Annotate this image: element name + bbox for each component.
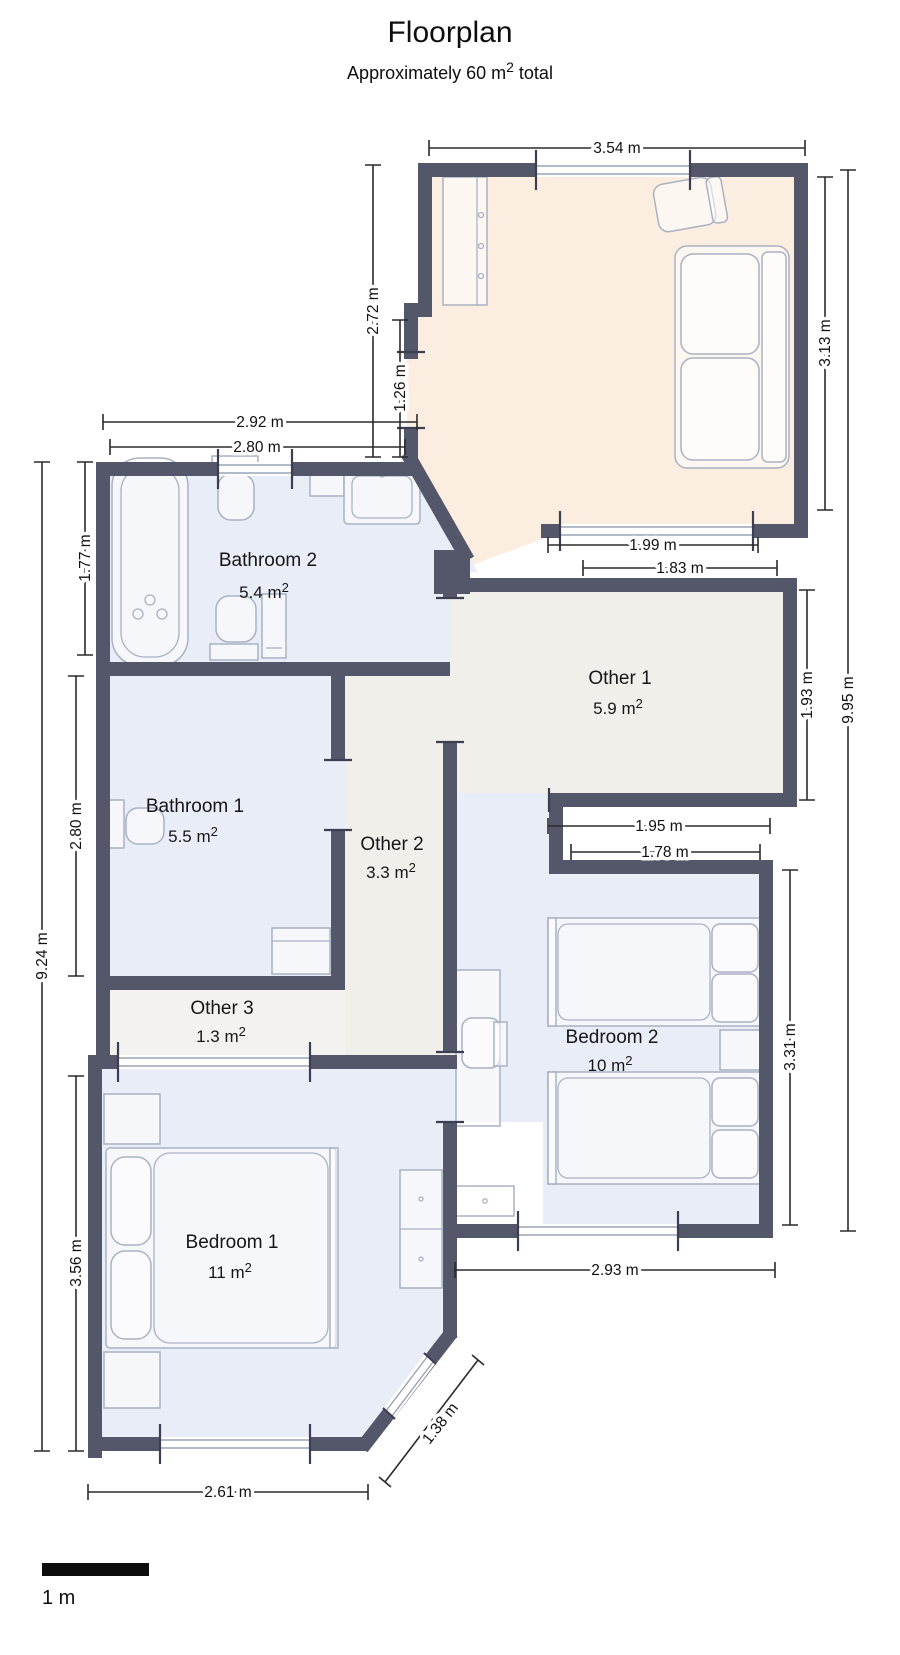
svg-text:2.80 m: 2.80 m: [233, 439, 280, 456]
dim-bedroom1-bottom: 2.61 m: [88, 1484, 368, 1501]
dim-bath2-outer: 2.92 m: [103, 414, 417, 431]
other1-floor: [450, 578, 797, 807]
dresser-icon: [400, 1170, 442, 1288]
svg-text:2.72 m: 2.72 m: [365, 287, 382, 334]
svg-text:3.31 m: 3.31 m: [782, 1023, 799, 1070]
dim-other1-top: 1.83 m: [583, 560, 777, 577]
dim-living-left-upper: 2.72 m: [365, 165, 382, 457]
svg-text:3.13 m: 3.13 m: [817, 319, 834, 366]
nightstand-icon: [720, 1030, 762, 1070]
svg-text:1.99 m: 1.99 m: [629, 537, 676, 554]
svg-text:Bedroom 2: Bedroom 2: [566, 1027, 659, 1048]
svg-text:1.38 m: 1.38 m: [419, 1400, 462, 1448]
single-bed-icon: [548, 918, 760, 1026]
svg-text:Other 2: Other 2: [360, 834, 423, 855]
page-subtitle: Approximately 60 m2 total: [347, 59, 553, 83]
svg-text:3.54 m: 3.54 m: [593, 140, 640, 157]
svg-text:Bathroom 2: Bathroom 2: [219, 550, 317, 571]
dim-bedroom2-top: 1.78 m: [571, 844, 760, 861]
cabinet-icon: [456, 1186, 514, 1216]
dim-bath2-inner: 2.80 m: [110, 439, 405, 456]
svg-text:9.24 m: 9.24 m: [34, 932, 51, 979]
wardrobe-icon: [443, 177, 487, 305]
dim-overall-left: 9.24 m: [34, 462, 51, 1451]
svg-text:2.61 m: 2.61 m: [204, 1484, 251, 1501]
cabinet-icon: [262, 594, 286, 658]
sofa-icon: [675, 246, 789, 468]
svg-text:1.78 m: 1.78 m: [641, 844, 688, 861]
svg-text:5.5 m2: 5.5 m2: [168, 824, 218, 846]
dim-bedroom2-bottom: 2.93 m: [455, 1262, 775, 1279]
svg-text:5.4 m2: 5.4 m2: [239, 580, 289, 602]
cabinet-icon: [272, 928, 330, 974]
dim-bedroom1-left: 3.56 m: [68, 1076, 85, 1451]
dim-other1-bottom: 1.95 m: [548, 818, 770, 835]
dim-bedroom2-right: 3.31 m: [782, 870, 799, 1225]
svg-text:1.3 m2: 1.3 m2: [196, 1024, 246, 1046]
chair-icon: [462, 1018, 507, 1068]
svg-text:1.93 m: 1.93 m: [799, 671, 816, 718]
svg-text:5.9 m2: 5.9 m2: [593, 696, 643, 718]
bathtub-icon: [112, 458, 188, 666]
dim-other1-right: 1.93 m: [799, 590, 816, 800]
header: Floorplan Approximately 60 m2 total: [347, 16, 553, 83]
svg-text:2.80 m: 2.80 m: [68, 802, 85, 849]
single-bed-icon: [548, 1072, 760, 1184]
svg-text:9.95 m: 9.95 m: [840, 676, 857, 723]
svg-text:1.95 m: 1.95 m: [635, 818, 682, 835]
toilet-icon: [210, 596, 258, 660]
page-title: Floorplan: [387, 16, 512, 49]
svg-text:3.3 m2: 3.3 m2: [366, 860, 416, 882]
scale-bar: 1 m: [42, 1563, 149, 1609]
nightstand-icon: [104, 1352, 160, 1408]
dim-top-width: 3.54 m: [429, 140, 805, 157]
svg-text:Other 1: Other 1: [588, 668, 651, 689]
floorplan-page: 3.54 m 2.72 m 1.26 m 2.92 m 2.80 m 3.13 …: [0, 0, 900, 1655]
svg-text:2.93 m: 2.93 m: [591, 1262, 638, 1279]
floorplan-drawing: 3.54 m 2.72 m 1.26 m 2.92 m 2.80 m 3.13 …: [0, 0, 900, 1655]
svg-text:Bedroom 1: Bedroom 1: [186, 1232, 279, 1253]
nightstand-icon: [104, 1094, 160, 1144]
dim-living-right: 3.13 m: [817, 177, 834, 510]
svg-text:1.77 m: 1.77 m: [77, 534, 94, 581]
svg-text:Other 3: Other 3: [190, 998, 253, 1019]
dim-bath1-left: 2.80 m: [68, 676, 85, 976]
dim-bath2-left: 1.77 m: [77, 462, 94, 655]
svg-text:1.26 m: 1.26 m: [392, 364, 409, 411]
dim-living-window: 1.99 m: [548, 537, 758, 554]
scale-bar-icon: [42, 1563, 149, 1576]
dim-overall-right: 9.95 m: [840, 170, 857, 1231]
svg-text:3.56 m: 3.56 m: [68, 1239, 85, 1286]
scale-bar-label: 1 m: [42, 1587, 75, 1609]
svg-text:1.83 m: 1.83 m: [656, 560, 703, 577]
svg-text:Bathroom 1: Bathroom 1: [146, 796, 244, 817]
svg-text:2.92 m: 2.92 m: [236, 414, 283, 431]
